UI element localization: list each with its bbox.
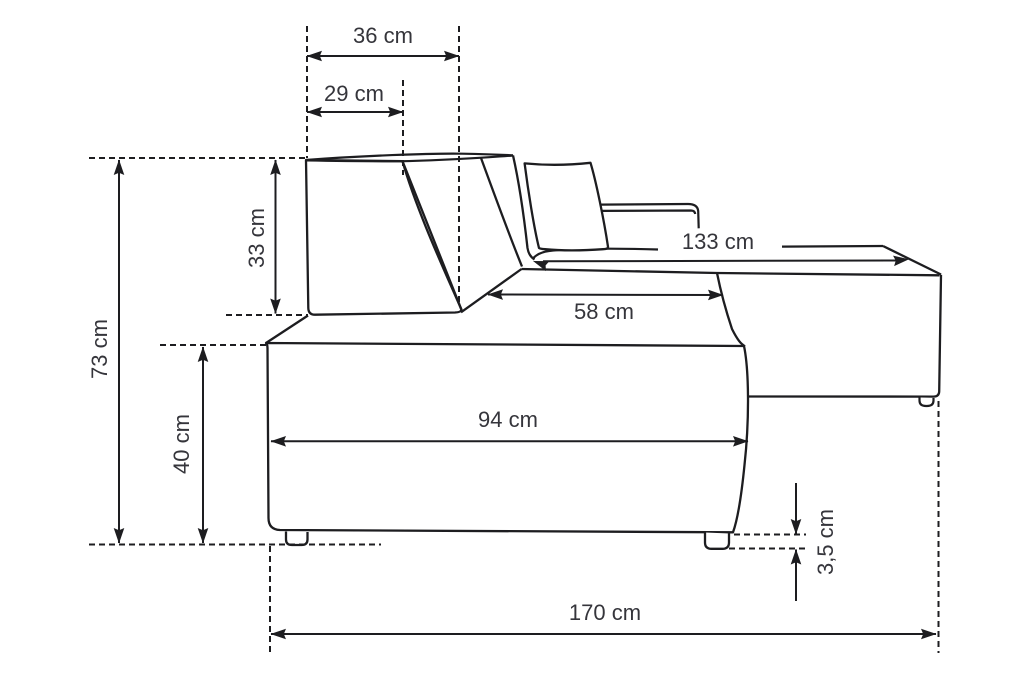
svg-text:29 cm: 29 cm — [324, 81, 384, 106]
svg-text:133 cm: 133 cm — [682, 229, 754, 254]
svg-text:3,5 cm: 3,5 cm — [813, 509, 838, 575]
svg-text:73 cm: 73 cm — [87, 319, 112, 379]
svg-text:33 cm: 33 cm — [244, 208, 269, 268]
svg-text:40 cm: 40 cm — [169, 414, 194, 474]
svg-text:94 cm: 94 cm — [478, 407, 538, 432]
svg-text:58 cm: 58 cm — [574, 299, 634, 324]
svg-text:36 cm: 36 cm — [353, 23, 413, 48]
svg-text:170 cm: 170 cm — [569, 600, 641, 625]
